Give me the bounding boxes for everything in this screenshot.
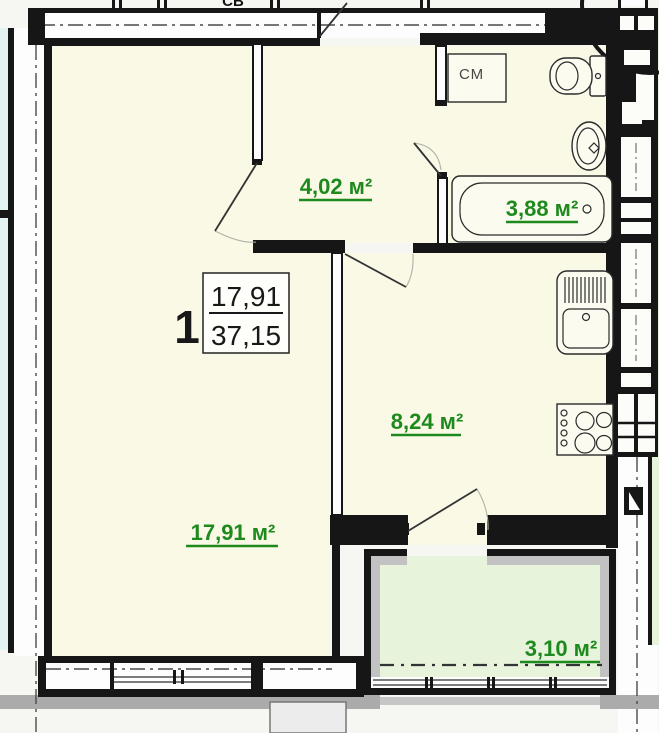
washing-machine-label: СМ — [459, 66, 484, 83]
washing-machine: СМ — [448, 54, 506, 102]
hallway-area-label: 4,02 м² — [300, 174, 373, 199]
living-area-value: 17,91 — [211, 281, 281, 312]
bathroom-sink — [572, 122, 606, 170]
stove — [557, 404, 613, 455]
lower-floor-balcony-outline — [270, 702, 346, 733]
balcony-floor — [371, 556, 609, 688]
north-mark-label: СВ — [222, 0, 244, 10]
living-room-area-label: 17,91 м² — [191, 520, 276, 545]
kitchen-sink — [557, 271, 613, 354]
balcony — [364, 549, 616, 695]
bathroom-area-label: 3,88 м² — [506, 196, 579, 221]
ventilation-shafts — [616, 8, 658, 457]
threshold-mark — [624, 487, 643, 515]
toilet — [550, 56, 606, 96]
floor-plan: СМ — [0, 0, 659, 733]
kitchen-area-label: 8,24 м² — [391, 409, 464, 434]
apartment-number: 1 — [174, 301, 200, 353]
balcony-area-label: 3,10 м² — [525, 636, 598, 661]
total-area-value: 37,15 — [211, 320, 281, 351]
